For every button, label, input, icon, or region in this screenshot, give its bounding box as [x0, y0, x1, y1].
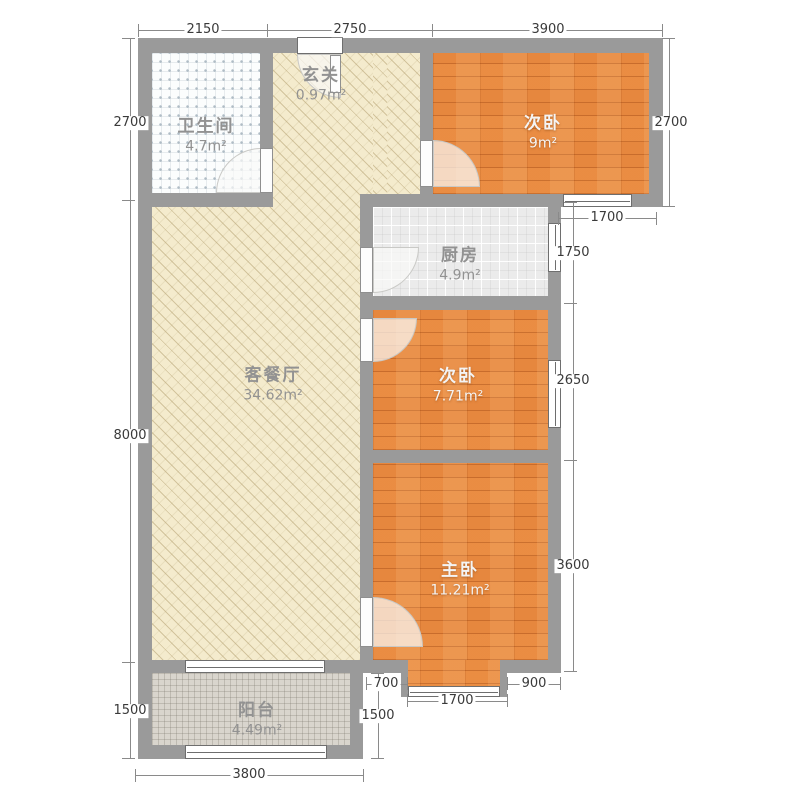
dim-label-1500-right: 1500: [359, 709, 396, 723]
living-room-label: 客餐厅 34.62m²: [243, 361, 302, 404]
window-balcony: [185, 745, 327, 759]
entry-name: 玄关: [296, 61, 346, 86]
balcony-area: 4.49m²: [232, 723, 282, 739]
master-bedroom-area: 11.21m²: [430, 583, 489, 599]
bedroom-top-label: 次卧 9m²: [524, 109, 562, 152]
dim-tick: [432, 24, 433, 37]
kitchen-label: 厨房 4.9m²: [439, 241, 481, 284]
dim-tick: [138, 24, 139, 37]
dim-label-700: 700: [372, 677, 401, 691]
dim-tick: [558, 212, 559, 225]
dim-label-1700-low: 1700: [438, 694, 475, 708]
dim-tick: [507, 677, 508, 690]
wall-left: [138, 38, 152, 673]
dim-label-1750: 1750: [554, 246, 591, 260]
dim-label-2700-left: 2700: [111, 116, 148, 130]
dim-label-2750: 2750: [331, 23, 368, 37]
dim-label-2650: 2650: [554, 374, 591, 388]
dim-tick: [564, 303, 577, 304]
dim-tick: [662, 24, 663, 37]
bedroom-mid-name: 次卧: [433, 362, 483, 387]
wall-bedrooms-divider: [360, 450, 561, 463]
dim-tick: [363, 769, 364, 782]
kitchen-name: 厨房: [439, 241, 481, 266]
dim-tick: [564, 202, 577, 203]
wall-master-bottom-right: [500, 660, 561, 673]
dim-tick: [560, 677, 561, 690]
master-bay-floor: [408, 660, 500, 686]
wall-kitchen-bottom: [360, 296, 561, 310]
window-pane-line: [555, 362, 556, 426]
dim-tick: [662, 206, 675, 207]
bathroom-door-leaf: [260, 148, 273, 193]
dim-label-1700-right: 1700: [588, 211, 625, 225]
bedroom-mid-label: 次卧 7.71m²: [433, 362, 483, 405]
dim-tick: [656, 212, 657, 225]
entry-label: 玄关 0.97m²: [296, 61, 346, 104]
dim-tick: [122, 662, 135, 663]
entry-floor: [373, 53, 420, 195]
living-room-name: 客餐厅: [243, 361, 302, 386]
master-door-leaf: [360, 597, 373, 647]
wall-rooms-left-c: [360, 362, 373, 597]
wall-bathroom-right: [260, 53, 273, 148]
window-bedroom-mid: [548, 360, 561, 428]
master-bedroom-name: 主卧: [430, 556, 489, 581]
dim-label-900: 900: [520, 677, 549, 691]
dim-label-1500-left: 1500: [111, 704, 148, 718]
dim-tick: [507, 694, 508, 707]
dim-tick: [564, 671, 577, 672]
living-room-area: 34.62m²: [243, 388, 302, 404]
dim-tick: [371, 758, 384, 759]
bathroom-name: 卫生间: [178, 112, 235, 137]
master-bedroom-label: 主卧 11.21m²: [430, 556, 489, 599]
dim-tick: [122, 758, 135, 759]
bedroom-top-name: 次卧: [524, 109, 562, 134]
balcony-name: 阳台: [232, 696, 282, 721]
bathroom-label: 卫生间 4.7m²: [178, 112, 235, 155]
dim-tick: [564, 460, 577, 461]
dim-line-left: [130, 38, 131, 759]
dim-line-right-inner: [573, 202, 574, 672]
dim-label-3900: 3900: [529, 23, 566, 37]
kitchen-area: 4.9m²: [439, 268, 481, 284]
dim-label-2700-right: 2700: [652, 116, 689, 130]
wall-bay-right: [500, 660, 507, 697]
bedroom-top-area: 9m²: [524, 136, 562, 152]
entry-door-panel: [297, 37, 343, 54]
dim-label-2150: 2150: [184, 23, 221, 37]
wall-top: [138, 38, 663, 53]
bedroom-mid-door-leaf: [360, 318, 373, 362]
dim-tick: [371, 673, 384, 674]
balcony-label: 阳台 4.49m²: [232, 696, 282, 739]
dim-tick: [366, 677, 367, 690]
dim-tick: [407, 677, 408, 690]
dim-tick: [662, 38, 675, 39]
bedroom-mid-area: 7.71m²: [433, 389, 483, 405]
dim-tick: [267, 24, 268, 37]
window-pane-line: [187, 752, 325, 753]
window-living-balcony: [185, 660, 325, 673]
floor-plan: 卫生间 4.7m² 玄关 0.97m² 次卧 9m² 厨房 4.9m² 客餐厅 …: [0, 0, 800, 800]
entry-area: 0.97m²: [296, 88, 346, 104]
wall-rooms-left-a: [360, 194, 373, 247]
bedroom-top-door-leaf: [420, 140, 433, 187]
dim-tick: [135, 769, 136, 782]
dim-label-8000: 8000: [111, 429, 148, 443]
dim-tick: [122, 200, 135, 201]
dim-label-3800: 3800: [230, 768, 267, 782]
dim-tick: [407, 694, 408, 707]
kitchen-door-leaf: [360, 247, 373, 293]
dim-tick: [122, 38, 135, 39]
bathroom-area: 4.7m²: [178, 139, 235, 155]
dim-label-3600: 3600: [554, 559, 591, 573]
wall-bathroom-bottom: [138, 193, 273, 207]
window-pane-line: [187, 667, 323, 668]
